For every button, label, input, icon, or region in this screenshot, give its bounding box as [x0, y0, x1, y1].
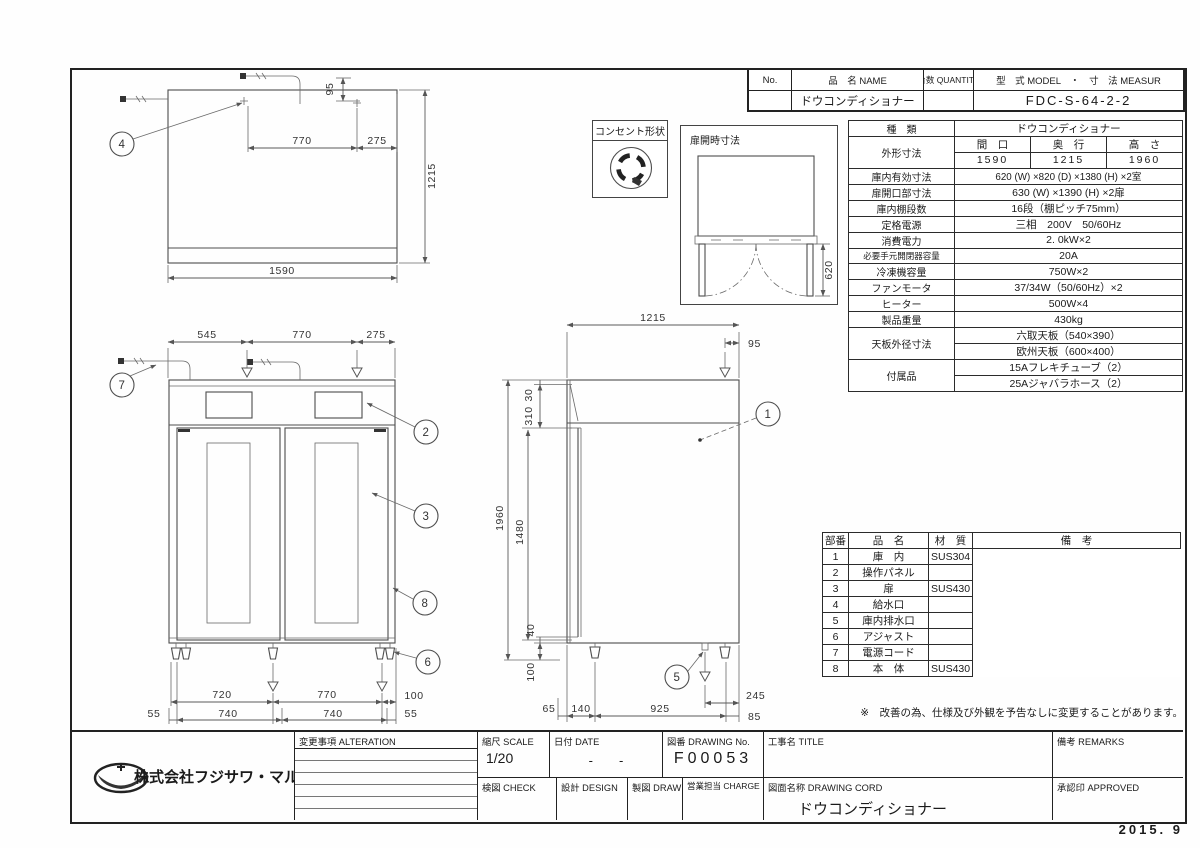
door-open-dimension: 620 — [815, 244, 835, 296]
svg-text:8: 8 — [422, 598, 429, 610]
svg-text:770: 770 — [292, 135, 311, 147]
balloon-4: 4 — [110, 103, 242, 156]
svg-text:1590: 1590 — [269, 265, 295, 277]
scale-cell: 縮尺 SCALE 1/20 — [478, 732, 550, 778]
plan-cord-left — [120, 96, 168, 102]
svg-text:310: 310 — [523, 406, 535, 425]
outlet-shape-label: コンセント形状 — [593, 121, 667, 141]
date-cell: 日付 DATE - - — [550, 732, 663, 778]
svg-text:65: 65 — [543, 703, 556, 715]
svg-text:100: 100 — [404, 690, 423, 702]
svg-text:1215: 1215 — [640, 312, 666, 324]
model-value: FDC-S-64-2-2 — [974, 91, 1183, 110]
alteration-row — [295, 773, 477, 785]
side-left-dimensions: 30 310 1960 1480 40 100 — [494, 380, 578, 682]
spec-row: 種 類 ドウコンディショナー — [849, 121, 1183, 137]
parts-row: 5庫内排水口25A（ジャバラホース付） — [823, 613, 1181, 629]
spec-row: 外形寸法 間 口 奥 行 高 さ — [849, 137, 1183, 153]
check-cell: 検図 CHECK — [478, 778, 557, 820]
plan-cord-top — [240, 73, 300, 104]
parts-row: 1庫 内SUS304断熱材付（ウレタンフォーム） — [823, 549, 1181, 565]
svg-text:4: 4 — [119, 139, 126, 151]
spec-subhead: 奥 行 — [1031, 137, 1107, 153]
spec-value: 1590 — [955, 153, 1031, 169]
qty-value — [924, 91, 974, 110]
col-model-header: 型 式 MODEL ・ 寸 法 MEASUR — [974, 70, 1183, 91]
parts-row: 8本 体SUS430 — [823, 661, 1181, 677]
side-bottom-dimensions: 245 65 140 925 85 — [543, 645, 766, 723]
change-notice-text: ※ 改善の為、仕様及び外観を予告なしに変更することがあります。 — [840, 705, 1183, 720]
svg-text:275: 275 — [366, 329, 385, 341]
outlet-shape-box: コンセント形状 — [592, 120, 668, 198]
balloon-6: 6 — [394, 650, 440, 674]
draw-cell: 製図 DRAW — [628, 778, 683, 820]
svg-text:2: 2 — [423, 427, 430, 439]
spec-table: 種 類 ドウコンディショナー 外形寸法 間 口 奥 行 高 さ 1590 121… — [848, 120, 1183, 392]
svg-text:7: 7 — [119, 380, 126, 392]
svg-text:6: 6 — [425, 657, 432, 669]
svg-text:740: 740 — [323, 708, 342, 720]
spec-row: 定格電源三相 200V 50/60Hz — [849, 216, 1183, 232]
door-open-cabinet — [695, 156, 817, 296]
company-cell: 株式会社フジサワ・マルゼン — [70, 732, 295, 820]
parts-header-row: 部番 品 名 材 質 備 考 — [823, 533, 1181, 549]
door-open-box: 扉開時寸法 620 — [680, 125, 838, 305]
side-view: 1 5 1215 95 30 310 1960 — [460, 300, 840, 730]
company-name: 株式会社フジサワ・マルゼン — [134, 766, 295, 787]
svg-text:100: 100 — [525, 662, 537, 681]
scale-value: 1/20 — [478, 750, 549, 766]
svg-text:770: 770 — [292, 329, 311, 341]
title-cell: 工事名 TITLE — [764, 732, 1053, 778]
side-feet — [590, 643, 730, 658]
plan-view: 4 95 770 275 1215 1590 — [70, 68, 460, 308]
spec-row: 扉開口部寸法630 (W) ×1390 (H) ×2扉 — [849, 184, 1183, 200]
svg-text:740: 740 — [218, 708, 237, 720]
balloon-7: 7 — [110, 365, 156, 397]
parts-row: 3扉SUS430 — [823, 581, 1181, 597]
no-value — [749, 91, 792, 110]
parts-table: 部番 品 名 材 質 備 考 1庫 内SUS304断熱材付（ウレタンフォーム） … — [822, 532, 1181, 677]
drawing-cord-cell: 図面名称 DRAWING CORD ドウコンディショナー — [764, 778, 1053, 820]
remarks-cell: 備考 REMARKS — [1053, 732, 1183, 778]
svg-text:85: 85 — [748, 711, 761, 723]
spec-value: 1215 — [1031, 153, 1107, 169]
svg-text:95: 95 — [748, 338, 761, 350]
svg-text:720: 720 — [212, 689, 231, 701]
balloon-2: 2 — [367, 403, 438, 444]
spec-row: 消費電力2. 0kW×2 — [849, 232, 1183, 248]
col-qty-header: 台数 QUANTITY — [924, 70, 974, 91]
title-block: 株式会社フジサワ・マルゼン 変更事項 ALTERATION 縮尺 SCALE 1… — [70, 730, 1183, 820]
drawing-no-cell: 図番 DRAWING No. F00053 — [663, 732, 764, 778]
outlet-shape-icon — [593, 140, 669, 198]
spec-row: ヒーター500W×4 — [849, 296, 1183, 312]
svg-text:1480: 1480 — [514, 519, 526, 545]
front-cord-left — [118, 358, 190, 380]
svg-text:275: 275 — [367, 135, 386, 147]
spec-value: 1960 — [1107, 153, 1183, 169]
alteration-cell: 変更事項 ALTERATION — [295, 732, 478, 820]
svg-text:140: 140 — [571, 703, 590, 715]
svg-text:30: 30 — [523, 389, 535, 402]
balloon-5: 5 — [665, 652, 703, 689]
svg-text:95: 95 — [324, 83, 336, 96]
charge-cell: 営業担当 CHARGE — [683, 778, 764, 820]
parts-row: 2操作パネル — [823, 565, 1181, 581]
alteration-row — [295, 761, 477, 773]
alteration-row — [295, 785, 477, 797]
balloon-8: 8 — [393, 588, 437, 615]
date-value: - - — [550, 750, 662, 769]
design-cell: 設計 DESIGN — [557, 778, 628, 820]
parts-row: 6アジャスト — [823, 629, 1181, 645]
svg-text:55: 55 — [405, 708, 418, 720]
svg-text:5: 5 — [674, 672, 681, 684]
spec-row: 必要手元開閉器容量20A — [849, 248, 1183, 264]
parts-row: 4給水口15A（G1/2） — [823, 597, 1181, 613]
balloon-3: 3 — [372, 493, 438, 528]
svg-text:40: 40 — [525, 624, 537, 637]
spec-row: 製品重量430kg — [849, 312, 1183, 328]
svg-text:545: 545 — [197, 329, 216, 341]
spec-subhead: 高 さ — [1107, 137, 1183, 153]
alteration-label: 変更事項 ALTERATION — [295, 732, 477, 749]
spec-row: 冷凍機容量750W×2 — [849, 264, 1183, 280]
side-top-dimensions: 1215 95 — [567, 312, 761, 378]
svg-text:770: 770 — [317, 689, 336, 701]
spec-subhead: 間 口 — [955, 137, 1031, 153]
side-cabinet — [567, 380, 739, 643]
svg-text:925: 925 — [650, 703, 669, 715]
parts-row: 7電源コード2. 5m接地3P 20A引掛プラグ付 — [823, 645, 1181, 661]
front-top-dimensions: 545 770 275 — [168, 329, 395, 378]
svg-text:1: 1 — [765, 409, 772, 421]
side-drain — [700, 652, 710, 681]
drawing-no-value: F00053 — [663, 750, 763, 768]
door-open-drawing: 620 — [681, 126, 839, 306]
svg-text:1960: 1960 — [494, 505, 506, 531]
spec-row: 庫内有効寸法620 (W) ×820 (D) ×1380 (H) ×2室 — [849, 168, 1183, 184]
col-no-header: No. — [749, 70, 792, 91]
alteration-row — [295, 809, 477, 820]
front-feet — [172, 643, 395, 659]
svg-text:3: 3 — [423, 511, 430, 523]
spec-label: 外形寸法 — [849, 137, 955, 169]
spec-row: 付属品 15Aフレキチューブ（2） — [849, 360, 1183, 376]
spec-row: ファンモータ37/34W（50/60Hz）×2 — [849, 280, 1183, 296]
svg-text:55: 55 — [148, 708, 161, 720]
drawing-sheet: No. 品 名 NAME 台数 QUANTITY 型 式 MODEL ・ 寸 法… — [0, 0, 1200, 848]
svg-text:620: 620 — [823, 260, 835, 279]
spec-value: ドウコンディショナー — [955, 121, 1183, 137]
alteration-row — [295, 749, 477, 761]
svg-text:245: 245 — [746, 690, 765, 702]
drawing-name-value: ドウコンディショナー — [764, 796, 1052, 819]
front-cord-middle — [247, 359, 300, 380]
approved-cell: 承認印 APPROVED — [1053, 778, 1183, 820]
spec-label: 種 類 — [849, 121, 955, 137]
front-view: 7 2 3 8 6 — [70, 300, 470, 730]
front-cabinet — [169, 380, 395, 643]
product-name-value: ドウコンディショナー — [792, 91, 924, 110]
col-name-header: 品 名 NAME — [792, 70, 924, 91]
spec-row: 庫内棚段数16段（棚ピッチ75mm） — [849, 200, 1183, 216]
svg-text:1215: 1215 — [426, 163, 438, 189]
date-stamp: 2015. 9 — [1020, 822, 1183, 837]
alteration-row — [295, 797, 477, 809]
spec-row: 天板外径寸法 六取天板（540×390） — [849, 328, 1183, 344]
name-model-table: No. 品 名 NAME 台数 QUANTITY 型 式 MODEL ・ 寸 法… — [747, 68, 1185, 112]
